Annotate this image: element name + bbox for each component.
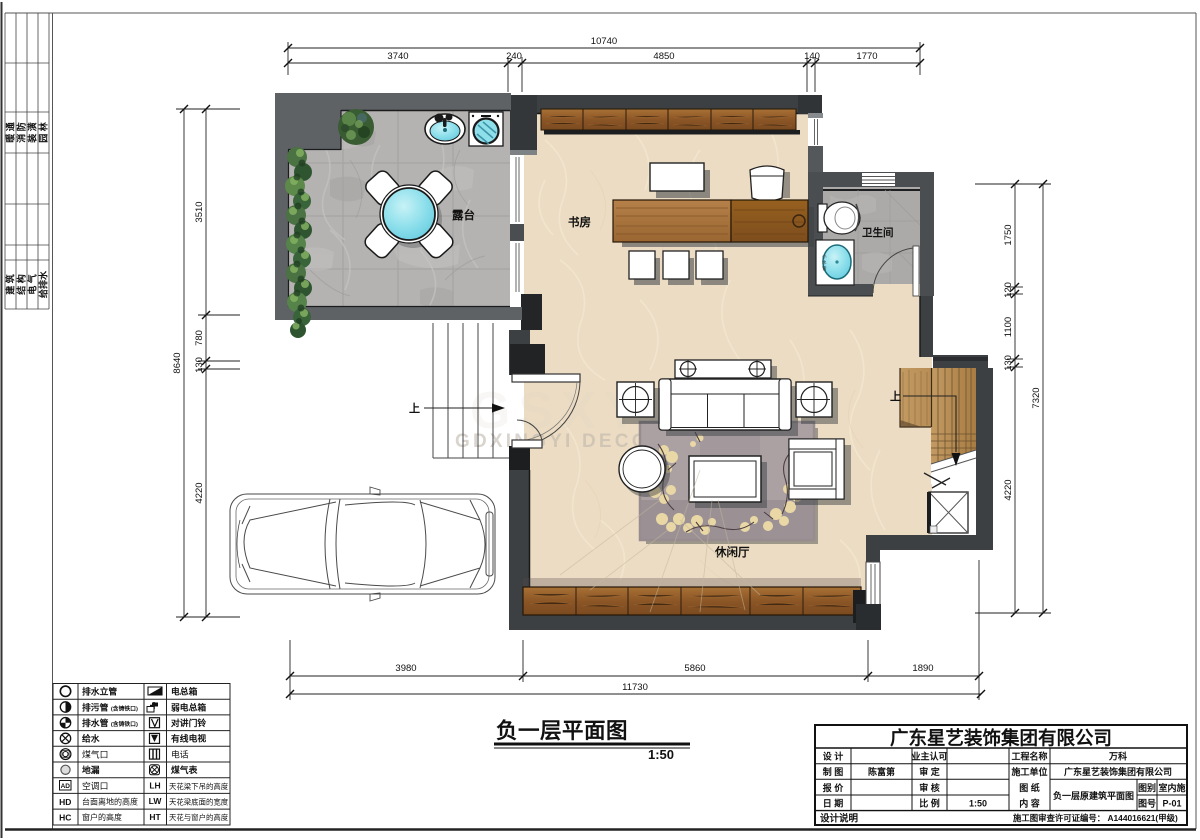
svg-text:园 林: 园 林 [38, 121, 49, 143]
svg-text:煤气口: 煤气口 [82, 748, 108, 759]
svg-text:审 定: 审 定 [919, 766, 941, 777]
svg-text:广东星艺装饰集团有限公司: 广东星艺装饰集团有限公司 [1064, 766, 1172, 777]
svg-text:图别: 图别 [1138, 782, 1156, 793]
svg-text:天花梁下吊的高度: 天花梁下吊的高度 [169, 782, 229, 791]
svg-text:1:50: 1:50 [969, 799, 987, 809]
svg-text:地漏: 地漏 [82, 764, 100, 775]
svg-text:排水立管: 排水立管 [82, 686, 117, 697]
svg-text:水: 水 [822, 259, 827, 265]
svg-text:LH: LH [149, 781, 160, 791]
svg-text:对讲门铃: 对讲门铃 [171, 717, 206, 728]
svg-text:1770: 1770 [856, 51, 877, 62]
svg-text:内 容: 内 容 [1019, 798, 1040, 809]
svg-text:室内施: 室内施 [1158, 782, 1185, 793]
svg-text:建 筑: 建 筑 [5, 274, 16, 295]
svg-text:AD: AD [61, 783, 71, 790]
svg-text:空调口: 空调口 [82, 780, 108, 791]
svg-text:3980: 3980 [395, 663, 416, 674]
svg-text:电 气: 电 气 [27, 274, 38, 295]
svg-text:给排水: 给排水 [38, 270, 49, 298]
svg-text:240: 240 [506, 51, 522, 62]
svg-text:4850: 4850 [653, 51, 674, 62]
svg-text:LW: LW [149, 796, 163, 806]
svg-text:给水: 给水 [82, 733, 100, 744]
svg-text:电话: 电话 [171, 748, 189, 759]
svg-text:设 计: 设 计 [823, 751, 844, 762]
svg-text:上: 上 [890, 389, 901, 403]
svg-text:10740: 10740 [591, 36, 617, 47]
svg-text:天花梁底面的宽度: 天花梁底面的宽度 [169, 798, 229, 807]
svg-text:工程名称: 工程名称 [1011, 751, 1047, 762]
svg-text:140: 140 [804, 51, 820, 62]
svg-text:8640: 8640 [172, 352, 183, 373]
svg-text:3510: 3510 [194, 201, 205, 222]
svg-text:煤气表: 煤气表 [171, 764, 198, 775]
svg-text:1100: 1100 [1003, 317, 1014, 337]
svg-text:3740: 3740 [387, 51, 408, 62]
svg-text:120: 120 [1003, 282, 1014, 298]
svg-text:1750: 1750 [1003, 224, 1014, 245]
svg-text:7320: 7320 [1031, 387, 1042, 408]
svg-text:1:50: 1:50 [648, 747, 674, 762]
svg-text:HD: HD [59, 797, 71, 807]
svg-text:130: 130 [194, 357, 205, 373]
svg-text:万科: 万科 [1108, 751, 1127, 762]
svg-text:图号: 图号 [1138, 799, 1156, 809]
svg-text:排污管 (含铸铁口): 排污管 (含铸铁口) [82, 701, 138, 712]
svg-text:5860: 5860 [684, 663, 705, 674]
svg-text:1890: 1890 [912, 663, 933, 674]
svg-text:比 例: 比 例 [919, 798, 940, 809]
svg-text:业主认可: 业主认可 [911, 751, 947, 762]
svg-text:日 期: 日 期 [823, 798, 844, 809]
svg-text:审 核: 审 核 [919, 782, 940, 793]
svg-text:消 防: 消 防 [16, 122, 27, 143]
svg-text:露台: 露台 [452, 208, 475, 222]
svg-text:施工单位: 施工单位 [1011, 766, 1047, 777]
svg-text:4220: 4220 [1003, 479, 1014, 500]
svg-text:HT: HT [149, 812, 161, 822]
svg-text:台面离地的高度: 台面离地的高度 [82, 797, 138, 807]
svg-text:报 价: 报 价 [823, 782, 845, 793]
svg-text:负一层平面图: 负一层平面图 [496, 719, 628, 743]
svg-text:排水管 (含铸铁口): 排水管 (含铸铁口) [82, 717, 138, 728]
svg-text:130: 130 [1003, 355, 1014, 371]
svg-text:窗户的高度: 窗户的高度 [82, 812, 122, 822]
svg-text:结 构: 结 构 [16, 274, 27, 295]
svg-text:图 纸: 图 纸 [1019, 782, 1040, 793]
svg-text:上: 上 [409, 401, 420, 415]
svg-text:P-01: P-01 [1162, 799, 1181, 809]
svg-text:780: 780 [194, 330, 205, 346]
svg-text:制 图: 制 图 [823, 766, 844, 777]
svg-text:陈富第: 陈富第 [868, 766, 895, 777]
svg-text:HC: HC [59, 813, 71, 823]
svg-text:施工图审查许可证编号： A144016621(甲级): 施工图审查许可证编号： A144016621(甲级) [1013, 813, 1178, 823]
svg-text:电总箱: 电总箱 [171, 686, 198, 697]
svg-text:负一层原建筑平面图: 负一层原建筑平面图 [1053, 790, 1134, 801]
svg-text:天花与窗户的高度: 天花与窗户的高度 [169, 813, 229, 822]
svg-text:弱电总箱: 弱电总箱 [171, 701, 206, 712]
svg-text:书房: 书房 [568, 215, 591, 229]
svg-text:装 潢: 装 潢 [27, 122, 38, 144]
svg-text:11730: 11730 [622, 682, 648, 693]
svg-text:卫生间: 卫生间 [862, 226, 894, 239]
svg-text:有线电视: 有线电视 [171, 733, 206, 744]
svg-text:管: 管 [822, 265, 827, 272]
svg-text:广东星艺装饰集团有限公司: 广东星艺装饰集团有限公司 [890, 728, 1112, 749]
svg-text:4220: 4220 [194, 482, 205, 503]
svg-text:暖 通: 暖 通 [5, 122, 16, 143]
svg-text:设计说明: 设计说明 [820, 813, 859, 825]
svg-text:小: 小 [822, 253, 827, 260]
